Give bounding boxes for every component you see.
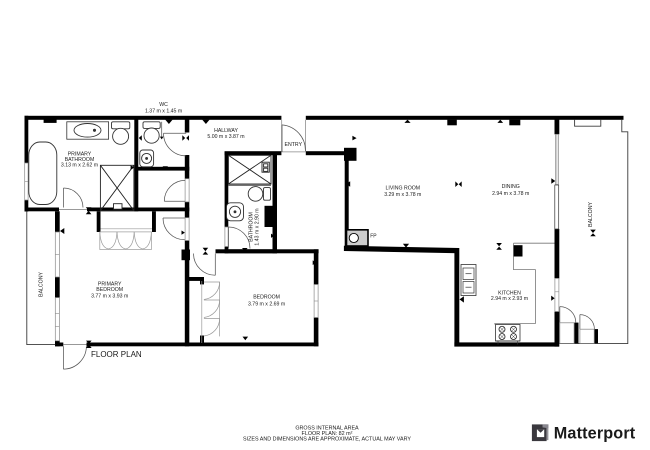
svg-text:BALCONY: BALCONY xyxy=(39,272,45,297)
svg-text:BATHROOM: BATHROOM xyxy=(248,212,254,242)
svg-text:FP: FP xyxy=(370,233,377,239)
svg-text:DINING: DINING xyxy=(502,184,520,190)
svg-text:1.37 m x 1.45 m: 1.37 m x 1.45 m xyxy=(145,108,182,114)
svg-text:5.00 m x 3.87 m: 5.00 m x 3.87 m xyxy=(207,134,244,140)
svg-text:3.77 m x 3.93 m: 3.77 m x 3.93 m xyxy=(91,293,128,299)
svg-text:BALCONY: BALCONY xyxy=(588,202,594,227)
svg-text:LIVING ROOM: LIVING ROOM xyxy=(386,186,421,192)
svg-text:BEDROOM: BEDROOM xyxy=(253,295,280,301)
svg-text:2.94 m x 3.78 m: 2.94 m x 3.78 m xyxy=(492,191,529,197)
svg-text:1.43 m x 2.90 m: 1.43 m x 2.90 m xyxy=(255,208,261,245)
svg-text:3.13 m x 2.62 m: 3.13 m x 2.62 m xyxy=(61,163,98,169)
svg-text:3.29 m x 3.78 m: 3.29 m x 3.78 m xyxy=(384,192,421,198)
svg-text:FLOOR PLAN: FLOOR PLAN xyxy=(91,350,142,359)
svg-text:BEDROOM: BEDROOM xyxy=(96,287,123,293)
svg-text:3.79 m x 2.69 m: 3.79 m x 2.69 m xyxy=(248,301,285,307)
svg-text:WC: WC xyxy=(159,102,168,108)
svg-text:2.94 m x 2.93 m: 2.94 m x 2.93 m xyxy=(491,296,528,302)
svg-text:Matterport: Matterport xyxy=(554,425,636,443)
svg-text:ENTRY: ENTRY xyxy=(285,142,303,148)
svg-text:SIZES AND DIMENSIONS ARE APPRO: SIZES AND DIMENSIONS ARE APPROXIMATE, AC… xyxy=(243,437,411,443)
